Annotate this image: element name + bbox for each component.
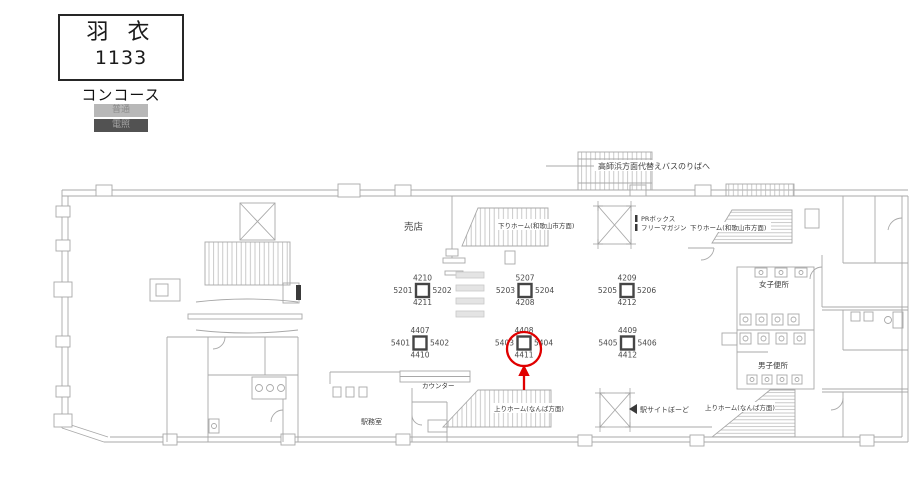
ad-box [621,337,634,350]
ad-number-right: 5206 [637,286,656,295]
up-platform-right-stairs: 上りホーム(なんば方面) [703,390,795,437]
ad-number-right: 5202 [433,286,452,295]
up-platform-center-label: 上りホーム(なんば方面) [494,404,564,413]
down-platform-center-label: 下りホーム(和歌山市方面) [498,221,574,230]
station-site-board: 駅サイトぼーど [595,388,712,432]
ad-box [519,284,532,297]
pr-box-label-line1: PRボックス [641,215,675,223]
floor-plan-svg: 高師浜方面代替えバスのりばへ 売店 [0,0,919,491]
mens-toilet-label: 男子便所 [758,360,788,370]
ad-number-top: 4407 [410,326,429,335]
ad-number-bottom: 4411 [514,351,533,360]
bus-exit-stairs: 高師浜方面代替えバスのりばへ [546,152,722,190]
ad-number-right: 5204 [535,286,554,295]
ad-group-4: 4407 5401 5402 4410 [391,326,449,360]
womens-toilet-label: 女子便所 [759,279,789,289]
ad-box [621,284,634,297]
pr-box: PRボックス フリーマガジン [593,201,687,249]
ad-group-6: 4409 5405 5406 4412 [598,326,656,360]
down-platform-right-stairs: 下りホーム(和歌山市方面) [687,209,819,260]
down-platform-center-stairs: 下りホーム(和歌山市方面) [462,208,575,264]
ad-number-right: 5406 [638,339,657,348]
station-ad-location-map: 羽 衣 1133 コンコース 普通 電照 [0,0,919,491]
ad-group-3: 4209 5205 5206 4212 [598,274,656,308]
ad-number-left: 5401 [391,339,410,348]
ad-number-bottom: 4412 [618,351,637,360]
ad-number-top: 4409 [618,326,637,335]
ad-number-right: 5402 [430,339,449,348]
ad-number-top: 4209 [617,274,636,283]
right-rooms [810,196,908,437]
ad-number-left: 5403 [495,339,514,348]
ad-box [416,284,429,297]
left-structure [150,203,302,442]
ad-number-right: 5404 [534,339,553,348]
shop-label: 売店 [404,221,423,233]
ad-number-bottom: 4211 [413,298,432,307]
down-platform-right-label: 下りホーム(和歌山市方面) [690,223,766,232]
ad-number-bottom: 4208 [515,298,534,307]
ad-number-left: 5201 [393,286,412,295]
up-platform-right-label: 上りホーム(なんば方面) [705,403,775,412]
ad-number-bottom: 4410 [410,351,429,360]
ad-box [518,337,531,350]
counter-label: カウンター [422,381,455,390]
ad-group-1: 4210 5201 5202 4211 [393,274,451,308]
toilet-block: 女子便所 男子便所 [722,267,814,389]
ad-number-left: 5203 [496,286,515,295]
ad-number-left: 5405 [598,339,617,348]
pr-box-label-line2: フリーマガジン [641,223,687,232]
station-site-board-label: 駅サイトぼーど [640,406,689,414]
ad-group-2: 5207 5203 5204 4208 [496,274,554,308]
up-platform-center-stairs: 上りホーム(なんば方面) [443,390,564,427]
bus-exit-label: 高師浜方面代替えバスのりばへ [598,161,710,171]
station-office-label: 駅務室 [361,417,382,426]
ad-box [414,337,427,350]
ad-number-left: 5205 [598,286,617,295]
ad-number-bottom: 4212 [617,298,636,307]
counter-office: カウンター 駅務室 [330,371,470,442]
ad-number-top: 5207 [515,274,534,283]
ad-number-top: 4210 [413,274,432,283]
